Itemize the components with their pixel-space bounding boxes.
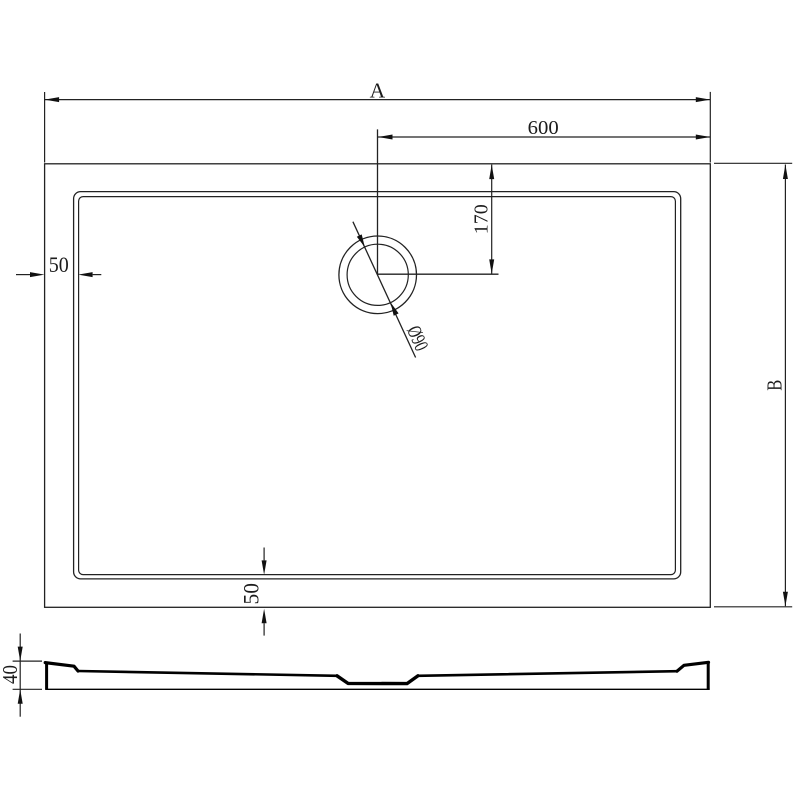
svg-text:50: 50 [239,583,264,605]
svg-text:B: B [763,380,787,391]
svg-text:170: 170 [471,204,493,234]
svg-text:50: 50 [49,252,69,277]
svg-text:06Ø: 06Ø [403,322,433,354]
svg-text:600: 600 [528,117,559,139]
svg-text:40: 40 [0,665,22,684]
svg-text:A: A [370,78,386,102]
